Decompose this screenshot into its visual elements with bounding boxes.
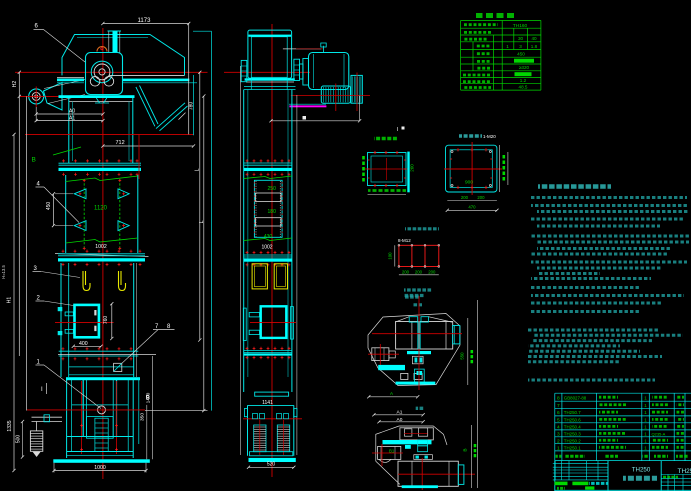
svg-text:TH250.6: TH250.6 [564,417,581,422]
svg-text:TH160: TH160 [513,23,528,29]
svg-text:500: 500 [16,435,22,444]
svg-text:B: B [32,157,36,164]
svg-text:TH250.3: TH250.3 [564,431,581,436]
svg-text:350: 350 [140,413,146,421]
svg-text:900: 900 [465,180,473,186]
svg-text:L: L [195,168,201,171]
svg-text:TH250.7: TH250.7 [564,410,581,415]
svg-text:30: 30 [518,36,524,41]
svg-text:4: 4 [557,424,560,430]
svg-text:1-M20: 1-M20 [483,134,496,139]
svg-text:H2: H2 [12,81,18,88]
svg-text:760: 760 [103,316,109,325]
svg-text:8: 8 [557,395,560,401]
svg-text:180: 180 [268,209,277,215]
svg-text:7: 7 [557,403,560,409]
svg-text:Q235-A: Q235-A [652,431,666,436]
svg-text:520: 520 [267,462,276,468]
svg-text:TH250.2: TH250.2 [564,438,581,443]
svg-text:1002: 1002 [95,244,107,250]
svg-text:TH250.4: TH250.4 [564,424,581,429]
svg-text:3: 3 [519,44,522,49]
svg-text:1120: 1120 [94,206,108,212]
svg-text:TH250.1: TH250.1 [564,445,581,450]
svg-text:2: 2 [557,438,560,444]
svg-text:A: A [390,391,393,396]
svg-text:200: 200 [477,195,485,200]
svg-text:1: 1 [557,445,560,451]
svg-text:1000: 1000 [94,465,106,471]
svg-text:1173: 1173 [138,18,152,24]
svg-text:200: 200 [402,269,410,274]
svg-text:780: 780 [189,102,195,111]
svg-text:1: 1 [506,44,509,49]
svg-text:1335: 1335 [7,420,13,431]
svg-text:≥320: ≥320 [519,65,530,70]
svg-text:8-M12: 8-M12 [398,238,411,243]
svg-text:GB8027-88: GB8027-88 [564,395,587,400]
svg-text:1002: 1002 [261,245,272,251]
svg-text:6: 6 [557,410,560,416]
svg-text:1.2: 1.2 [520,78,527,83]
svg-text:40: 40 [531,36,537,41]
svg-text:H=13.5: H=13.5 [1,265,6,279]
svg-text:400: 400 [79,341,88,347]
svg-text:250: 250 [268,186,277,192]
svg-text:450: 450 [517,52,525,57]
svg-text:L: L [199,220,205,223]
svg-text:B: B [463,448,469,451]
svg-text:1400: 1400 [146,392,152,403]
svg-text:470: 470 [468,204,476,209]
svg-text:TH25: TH25 [678,468,691,475]
svg-text:5: 5 [557,417,560,423]
svg-text:48.5: 48.5 [519,85,528,90]
svg-text:1.8: 1.8 [531,44,538,49]
svg-text:TH250: TH250 [632,467,651,474]
svg-text:200: 200 [428,269,436,274]
svg-text:3: 3 [557,431,560,437]
svg-text:H1: H1 [7,297,13,304]
svg-text:712: 712 [116,140,125,146]
svg-text:200: 200 [461,195,469,200]
svg-text:260: 260 [410,164,415,172]
svg-text:100: 100 [388,252,393,260]
svg-text:B1: B1 [389,449,395,454]
svg-text:450: 450 [46,202,52,211]
svg-text:200: 200 [415,269,423,274]
svg-text:550: 550 [460,352,465,360]
